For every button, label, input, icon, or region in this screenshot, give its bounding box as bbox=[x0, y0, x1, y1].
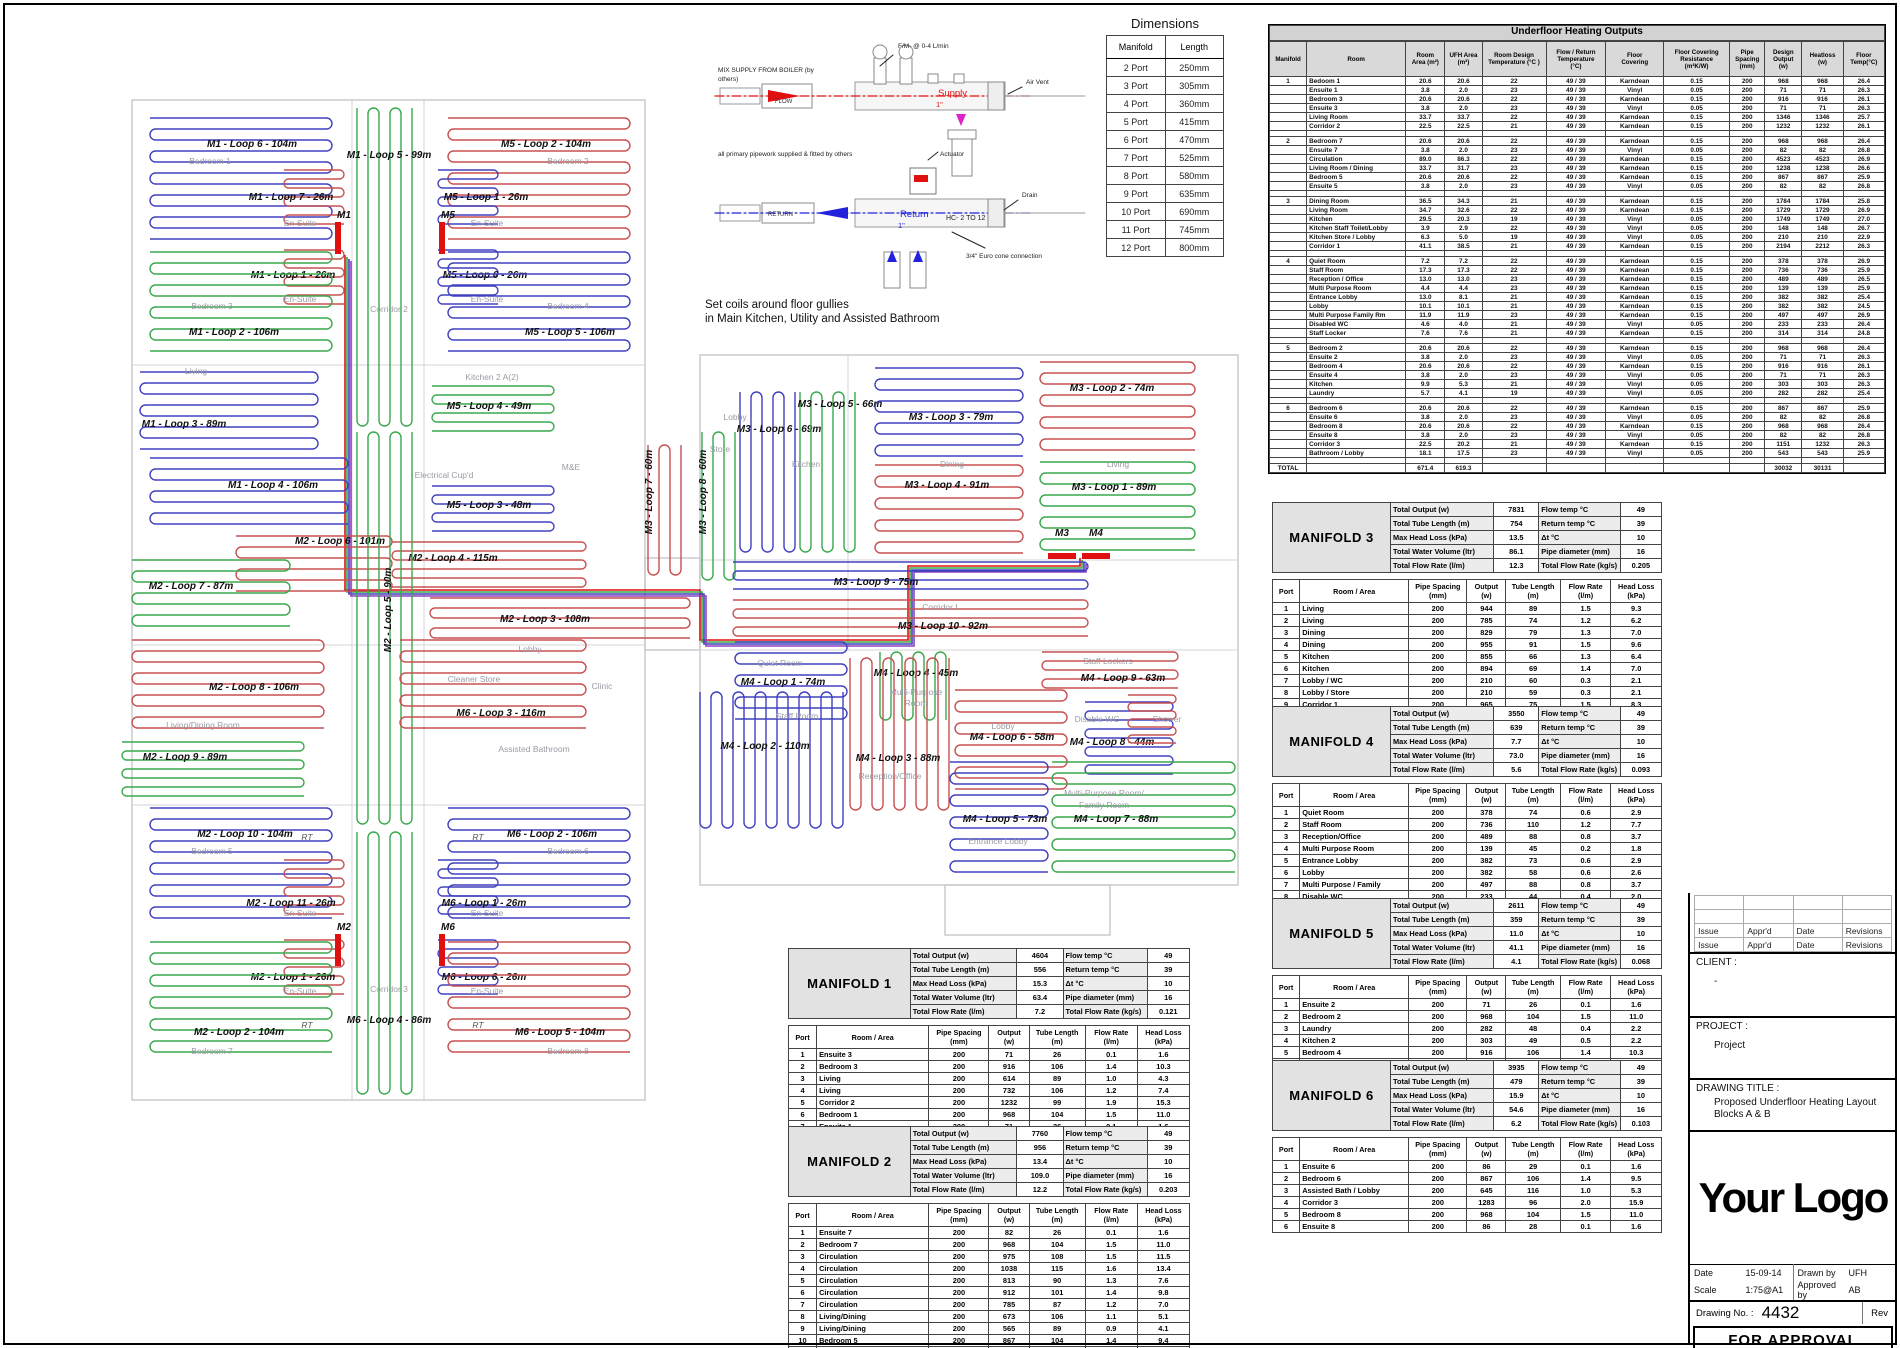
date-scale-table: Date 15-09-14 Drawn by UFH Scale 1:75@A1… bbox=[1690, 1264, 1896, 1300]
room-label: Kitchen 2 A(2) bbox=[465, 372, 519, 382]
loop-label: M2 - Loop 10 - 104m bbox=[197, 829, 293, 840]
room-label: Assisted Bathroom bbox=[498, 744, 569, 754]
table-row: 10 Port690mm bbox=[1107, 203, 1224, 221]
port-row: 1Ensuite 720082260.11.6 bbox=[789, 1227, 1190, 1239]
room-thermostat-label: RT bbox=[301, 1020, 313, 1030]
heating-loop bbox=[875, 465, 1023, 553]
port-row: 8Lobby / Store200210590.32.1 bbox=[1273, 687, 1662, 699]
table-row: 3 Port305mm bbox=[1107, 77, 1224, 95]
manifold-summary-block: MANIFOLD 6Total Output (w)3935Flow temp … bbox=[1272, 1060, 1662, 1233]
heating-outputs-panel: Underfloor Heating Outputs ManifoldRoomR… bbox=[1268, 24, 1886, 474]
port-row: 1Ensuite 320071260.11.6 bbox=[789, 1049, 1190, 1061]
table-row: 2 Port250mm bbox=[1107, 59, 1224, 77]
heating-loop bbox=[132, 560, 290, 626]
port-row: 4Kitchen 2200303490.52.2 bbox=[1273, 1035, 1662, 1047]
port-row: 4Dining200955911.59.6 bbox=[1273, 639, 1662, 651]
loop-label: M3 - Loop 1 - 89m bbox=[1072, 482, 1157, 493]
room-label: Multi-Purpose Room/ bbox=[1064, 788, 1144, 798]
port-row: 3Assisted Bath / Lobby2006451161.05.3 bbox=[1273, 1185, 1662, 1197]
column-header: Room Area (m²) bbox=[1406, 42, 1445, 77]
room-label: Cleaner Store bbox=[448, 674, 501, 684]
port-row: 5Entrance Lobby200382730.62.9 bbox=[1273, 855, 1662, 867]
loop-label: M4 - Loop 2 - 110m bbox=[720, 741, 809, 752]
filter-arrow bbox=[956, 114, 966, 126]
table-row: Disabled WC4.64.02149 / 39Vinyl0.0520023… bbox=[1270, 320, 1885, 329]
loop-label: M6 - Loop 5 - 104m bbox=[515, 1027, 605, 1038]
schematic-label-mix1: MIX SUPPLY FROM BOILER (by bbox=[718, 67, 815, 74]
room-label: Corridor 2 bbox=[370, 304, 408, 314]
heating-outputs-table: Underfloor Heating Outputs ManifoldRoomR… bbox=[1269, 25, 1885, 473]
room-label: Lobby bbox=[991, 721, 1015, 731]
schematic-label-supply-size: 1" bbox=[936, 100, 943, 109]
port-row: 1Ensuite 620086290.11.6 bbox=[1273, 1161, 1662, 1173]
schematic-label-supply: Supply bbox=[938, 88, 967, 99]
loop-label: M5 - Loop 3 - 48m bbox=[447, 500, 532, 511]
table-row: Bathroom / Lobby18.117.52349 / 39Vinyl0.… bbox=[1270, 449, 1885, 458]
heating-loop bbox=[740, 392, 795, 552]
port-row: 2Living200785741.26.2 bbox=[1273, 615, 1662, 627]
loop-label: M4 - Loop 7 - 88m bbox=[1074, 814, 1159, 825]
table-row: Ensuite 83.82.02349 / 39Vinyl0.052008282… bbox=[1270, 431, 1885, 440]
loop-label: M2 - Loop 1 - 26m bbox=[251, 972, 336, 983]
manifold-summary-block: MANIFOLD 4Total Output (w)3550Flow temp … bbox=[1272, 706, 1662, 915]
manifold-marker bbox=[1048, 553, 1076, 559]
loop-label: M2 - Loop 8 - 106m bbox=[209, 682, 299, 693]
table-row: Ensuite 43.82.02349 / 39Vinyl0.052007171… bbox=[1270, 371, 1885, 380]
loop-label: M5 - Loop 6 - 26m bbox=[443, 270, 528, 281]
dimensions-title: Dimensions bbox=[1106, 16, 1224, 31]
date-value: 15-09-14 bbox=[1742, 1265, 1794, 1281]
table-row: Ensuite 53.82.02349 / 39Vinyl0.052008282… bbox=[1270, 182, 1885, 191]
approved-by-label: Approved by bbox=[1793, 1280, 1845, 1300]
drawn-by-label: Drawn by bbox=[1793, 1265, 1845, 1281]
room-label: Quiet Room bbox=[757, 658, 802, 668]
loop-label: M2 - Loop 9 - 89m bbox=[143, 752, 228, 763]
drawing-title-line1: Proposed Underfloor Heating Layout bbox=[1714, 1097, 1890, 1108]
port-row: 5Circulation200813901.37.6 bbox=[789, 1275, 1190, 1287]
manifold-name: MANIFOLD 6 bbox=[1273, 1061, 1391, 1131]
drawing-title-box: DRAWING TITLE : Proposed Underfloor Heat… bbox=[1690, 1078, 1896, 1130]
scale-value: 1:75@A1 bbox=[1742, 1280, 1794, 1300]
port-row: 4Multi Purpose Room200139450.21.8 bbox=[1273, 843, 1662, 855]
heating-loop bbox=[800, 392, 855, 552]
loop-label: M2 - Loop 6 - 101m bbox=[295, 536, 385, 547]
loop-label: M3 - Loop 4 - 91m bbox=[905, 480, 990, 491]
loop-label: M4 - Loop 5 - 73m bbox=[963, 814, 1048, 825]
approved-by-value: AB bbox=[1845, 1280, 1897, 1300]
building-outline bbox=[945, 885, 1110, 935]
schematic-label-air-vent: Air Vent bbox=[1026, 79, 1049, 86]
table-row: 9 Port635mm bbox=[1107, 185, 1224, 203]
schematic-label-return-box: RETURN bbox=[768, 212, 793, 218]
room-label: En-Suite bbox=[284, 986, 317, 996]
room-label: Bedroom 4 bbox=[547, 301, 589, 311]
table-row: Bedroom 820.620.62249 / 39Karndean0.1520… bbox=[1270, 422, 1885, 431]
heating-loop bbox=[357, 832, 412, 1094]
room-label: En-Suite bbox=[471, 986, 504, 996]
logo-box: Your Logo bbox=[1690, 1130, 1896, 1264]
table-row: Ensuite 13.82.02349 / 39Vinyl0.052007171… bbox=[1270, 86, 1885, 95]
table-row: 4Quiet Room7.27.22249 / 39Karndean0.1520… bbox=[1270, 257, 1885, 266]
column-header: Pipe Spacing (mm) bbox=[1730, 42, 1765, 77]
project-box: PROJECT : Project bbox=[1690, 1016, 1896, 1078]
port-row: 3Reception/Office200489880.83.7 bbox=[1273, 831, 1662, 843]
table-row: 2Bedroom 720.620.62249 / 39Karndean0.152… bbox=[1270, 137, 1885, 146]
project-label: PROJECT : bbox=[1696, 1021, 1890, 1032]
room-label: Family Room bbox=[1079, 800, 1129, 810]
room-label: Bedroom 6 bbox=[547, 846, 589, 856]
room-label: Kitchen bbox=[792, 459, 821, 469]
table-row: 3Dining Room36.534.32149 / 39Karndean0.1… bbox=[1270, 197, 1885, 206]
table-row: Lobby10.110.12149 / 39Karndean0.15200382… bbox=[1270, 302, 1885, 311]
manifold-marker-label: M6 bbox=[441, 922, 455, 933]
loop-label: M4 - Loop 3 - 88m bbox=[856, 753, 941, 764]
heating-loop bbox=[880, 652, 946, 720]
table-row: Multi Purpose Room4.44.42349 / 39Karndea… bbox=[1270, 284, 1885, 293]
manifold-marker bbox=[335, 934, 341, 966]
heating-loop bbox=[150, 458, 348, 524]
port-row: 2Bedroom 72009681041.511.0 bbox=[789, 1239, 1190, 1251]
table-row: 11 Port745mm bbox=[1107, 221, 1224, 239]
room-label: Multi-Purpose bbox=[890, 687, 943, 697]
room-label: Staff Lockers bbox=[1083, 656, 1132, 666]
room-label: Corridor 3 bbox=[370, 984, 408, 994]
loop-label: M3 - Loop 9 - 75m bbox=[834, 577, 919, 588]
table-row: Bedroom 320.620.62249 / 39Karndean0.1520… bbox=[1270, 95, 1885, 104]
loop-label: M1 - Loop 5 - 99m bbox=[347, 150, 432, 161]
table-row: 5Bedroom 220.620.62249 / 39Karndean0.152… bbox=[1270, 344, 1885, 353]
table-row: 5 Port415mm bbox=[1107, 113, 1224, 131]
table-row: Bedroom 420.620.62249 / 39Karndean0.1520… bbox=[1270, 362, 1885, 371]
manifold-name: MANIFOLD 3 bbox=[1273, 503, 1391, 573]
manifold-marker bbox=[439, 222, 445, 254]
drawing-no-label: Drawing No. : bbox=[1690, 1308, 1754, 1319]
schematic-label-drain: Drain bbox=[1022, 192, 1038, 199]
room-label: Bedroom 8 bbox=[547, 1046, 589, 1056]
room-label: En-Suite bbox=[284, 218, 317, 228]
table-row: 7 Port525mm bbox=[1107, 149, 1224, 167]
loop-label: M3 - Loop 3 - 79m bbox=[909, 412, 994, 423]
room-thermostat-label: RT bbox=[301, 832, 313, 842]
table-row: 8 Port580mm bbox=[1107, 167, 1224, 185]
port-row: 4Living2007321061.27.4 bbox=[789, 1085, 1190, 1097]
port-row: 6Kitchen200894691.47.0 bbox=[1273, 663, 1662, 675]
heating-loop bbox=[392, 542, 586, 587]
port-row: 7Circulation200785871.27.0 bbox=[789, 1299, 1190, 1311]
schematic-label-fm: F/M- @ 0-4 L/min bbox=[898, 43, 949, 50]
column-header: Manifold bbox=[1270, 42, 1307, 77]
column-header: Flow / Return Temperature (°C) bbox=[1546, 42, 1606, 77]
port-row: 8Living/Dining2006731061.15.1 bbox=[789, 1311, 1190, 1323]
manifold-name: MANIFOLD 1 bbox=[789, 949, 911, 1019]
port-row: 7Lobby / WC200210600.32.1 bbox=[1273, 675, 1662, 687]
table-row: Kitchen Staff Toilet/Lobby3.92.92249 / 3… bbox=[1270, 224, 1885, 233]
schematic-label-euro: 3/4" Euro cone connection bbox=[966, 253, 1042, 260]
revisions-table: IssueAppr'dDateRevisionsIssueAppr'dDateR… bbox=[1694, 895, 1892, 952]
schematic-label-return-size: 1" bbox=[898, 221, 905, 230]
port-row: 2Staff Room2007361101.27.7 bbox=[1273, 819, 1662, 831]
port-row: 2Bedroom 32009161061.410.3 bbox=[789, 1061, 1190, 1073]
table-row: Staff Room17.317.32249 / 39Karndean0.152… bbox=[1270, 266, 1885, 275]
table-row: TOTAL671.4619.33003230131 bbox=[1270, 464, 1885, 473]
manifold-marker-label: M3 bbox=[1055, 528, 1069, 539]
table-row: Kitchen Store / Lobby6.35.01949 / 39Viny… bbox=[1270, 233, 1885, 242]
table-row: Reception / Office13.013.02349 / 39Karnd… bbox=[1270, 275, 1885, 284]
loop-label: M1 - Loop 1 - 26m bbox=[251, 270, 336, 281]
loop-label: M5 - Loop 2 - 104m bbox=[501, 139, 591, 150]
port-row: 3Living200614891.04.3 bbox=[789, 1073, 1190, 1085]
room-label: Entrance Lobby bbox=[968, 836, 1028, 846]
loop-label: M3 - Loop 8 - 60m bbox=[698, 450, 709, 535]
loop-label: M3 - Loop 7 - 60m bbox=[644, 450, 655, 535]
loop-label: M3 - Loop 5 - 66m bbox=[798, 399, 883, 410]
port-row: 10Bedroom 52008671041.49.4 bbox=[789, 1335, 1190, 1347]
table-row: Bedroom 520.620.62249 / 39Karndean0.1520… bbox=[1270, 173, 1885, 182]
schematic-label-hc: HC- 2 TO 12 bbox=[946, 215, 986, 222]
client-label: CLIENT : bbox=[1696, 957, 1890, 968]
heating-loop bbox=[1040, 362, 1195, 450]
loop-label: M2 - Loop 3 - 108m bbox=[500, 614, 590, 625]
company-logo: Your Logo bbox=[1699, 1174, 1888, 1222]
loop-label: M6 - Loop 3 - 116m bbox=[456, 708, 545, 719]
port-row: 6Ensuite 820086280.11.6 bbox=[1273, 1221, 1662, 1233]
room-label: En-Suite bbox=[284, 294, 317, 304]
port-row: 1Living200944891.59.3 bbox=[1273, 603, 1662, 615]
manifold-summary-block: MANIFOLD 3Total Output (w)7831Flow temp … bbox=[1272, 502, 1662, 723]
scale-label: Scale bbox=[1690, 1280, 1742, 1300]
column-header: Design Output (w) bbox=[1765, 42, 1802, 77]
heating-loop bbox=[122, 742, 304, 796]
manifold-marker bbox=[439, 934, 445, 966]
table-row: Staff Locker7.67.62149 / 39Karndean0.152… bbox=[1270, 329, 1885, 338]
table-row: Ensuite 33.82.02349 / 39Vinyl0.052007171… bbox=[1270, 104, 1885, 113]
column-header: Manifold bbox=[1107, 36, 1166, 59]
table-row: Ensuite 73.82.02349 / 39Vinyl0.052008282… bbox=[1270, 146, 1885, 155]
port-row: 4Corridor 32001283962.015.9 bbox=[1273, 1197, 1662, 1209]
loop-label: M2 - Loop 2 - 104m bbox=[194, 1027, 284, 1038]
column-header: Floor Covering bbox=[1606, 42, 1664, 77]
loop-label: M2 - Loop 4 - 115m bbox=[408, 553, 497, 564]
port-row: 2Bedroom 22009681041.511.0 bbox=[1273, 1011, 1662, 1023]
manifold-name: MANIFOLD 4 bbox=[1273, 707, 1391, 777]
port-row: 6Bedroom 12009681041.511.0 bbox=[789, 1109, 1190, 1121]
loop-label: M1 - Loop 6 - 104m bbox=[207, 139, 297, 150]
manifold-marker-label: M1 bbox=[337, 210, 351, 221]
loop-label: M6 - Loop 6 - 26m bbox=[442, 972, 527, 983]
loop-label: M5 - Loop 5 - 106m bbox=[525, 327, 615, 338]
heating-loop bbox=[700, 692, 843, 828]
port-row: 4Circulation20010381151.613.4 bbox=[789, 1263, 1190, 1275]
room-label: En-Suite bbox=[471, 218, 504, 228]
table-row: Living Room33.733.72249 / 39Karndean0.15… bbox=[1270, 113, 1885, 122]
room-label: En-Suite bbox=[284, 908, 317, 918]
manifold-summary-block: MANIFOLD 5Total Output (w)2611Flow temp … bbox=[1272, 898, 1662, 1071]
note-line-1: Set coils around floor gullies bbox=[705, 299, 849, 311]
port-row: 5Bedroom 42009161061.410.3 bbox=[1273, 1047, 1662, 1059]
room-label: M&E bbox=[562, 462, 581, 472]
loop-label: M4 - Loop 1 - 74m bbox=[741, 677, 826, 688]
port-row: 9Living/Dining200565890.94.1 bbox=[789, 1323, 1190, 1335]
port-row: 1Quiet Room200378740.62.9 bbox=[1273, 807, 1662, 819]
port-row: 3Laundry200282480.42.2 bbox=[1273, 1023, 1662, 1035]
client-box: CLIENT : - bbox=[1690, 952, 1896, 1016]
drawing-sheet: M1 - Loop 6 - 104mM1 - Loop 5 - 99mM5 - … bbox=[0, 0, 1900, 1348]
drawing-title-label: DRAWING TITLE : bbox=[1696, 1083, 1890, 1094]
room-label: Disable WC bbox=[1075, 714, 1120, 724]
room-label: Bedroom 3 bbox=[191, 301, 233, 311]
room-label: Living/Dining Room bbox=[166, 720, 240, 730]
loop-label: M1 - Loop 3 - 89m bbox=[142, 419, 227, 430]
heating-loop bbox=[140, 372, 318, 449]
room-label: Bedroom 2 bbox=[547, 156, 589, 166]
rev-label: Rev bbox=[1862, 1302, 1896, 1324]
dimensions-panel: Dimensions ManifoldLength2 Port250mm3 Po… bbox=[1106, 16, 1224, 257]
room-label: Clinic bbox=[592, 681, 614, 691]
table-row: Multi Purpose Family Rm11.911.92349 / 39… bbox=[1270, 311, 1885, 320]
room-label: Shower bbox=[1153, 714, 1182, 724]
date-label: Date bbox=[1690, 1265, 1742, 1281]
loop-label: M5 - Loop 4 - 49m bbox=[447, 401, 532, 412]
dimensions-table: ManifoldLength2 Port250mm3 Port305mm4 Po… bbox=[1106, 35, 1224, 257]
drawing-number-row: Drawing No. : 4432 Rev bbox=[1690, 1300, 1896, 1324]
table-row: Ensuite 63.82.02349 / 39Vinyl0.052008282… bbox=[1270, 413, 1885, 422]
manifold-schematic-diagram: F/M- @ 0-4 L/min MIX SUPPLY FROM BOILER … bbox=[705, 43, 1085, 325]
loop-label: M3 - Loop 2 - 74m bbox=[1070, 383, 1155, 394]
room-label: Lobby bbox=[518, 644, 542, 654]
drawing-no-value: 4432 bbox=[1754, 1303, 1863, 1323]
room-label: Electrical Cup'd bbox=[415, 470, 474, 480]
table-row: Laundry5.74.11949 / 39Vinyl0.05200282282… bbox=[1270, 389, 1885, 398]
room-label: Lobby bbox=[723, 412, 747, 422]
title-block: IssueAppr'dDateRevisionsIssueAppr'dDateR… bbox=[1688, 893, 1896, 1343]
manifold-marker-label: M5 bbox=[441, 210, 455, 221]
port-row: 6Circulation2009121011.49.8 bbox=[789, 1287, 1190, 1299]
table-row: 4 Port360mm bbox=[1107, 95, 1224, 113]
schematic-label-flow: FLOW bbox=[775, 99, 793, 105]
table-row: Living Room / Dining33.731.72349 / 39Kar… bbox=[1270, 164, 1885, 173]
manifold-summary-block: MANIFOLD 2Total Output (w)7760Flow temp … bbox=[788, 1126, 1190, 1348]
building-outline bbox=[645, 558, 700, 650]
flow-meter-icon bbox=[873, 45, 887, 59]
port-row: 1Ensuite 220071260.11.6 bbox=[1273, 999, 1662, 1011]
loop-label: M2 - Loop 7 - 87m bbox=[149, 581, 234, 592]
table-row: Corridor 141.138.52149 / 39Karndean0.152… bbox=[1270, 242, 1885, 251]
room-label: En-Suite bbox=[471, 294, 504, 304]
room-label: Living bbox=[1107, 459, 1129, 469]
port-row: 7Multi Purpose / Family200497880.83.7 bbox=[1273, 879, 1662, 891]
schematic-label-primary: all primary pipework supplied & fitted b… bbox=[718, 151, 853, 158]
room-label: Staff Room bbox=[776, 711, 818, 721]
heating-loop bbox=[850, 658, 949, 810]
port-row: 3Circulation2009751081.511.5 bbox=[789, 1251, 1190, 1263]
table-row: Kitchen9.95.32149 / 39Vinyl0.05200303303… bbox=[1270, 380, 1885, 389]
manifold-name: MANIFOLD 5 bbox=[1273, 899, 1391, 969]
column-header: Room Design Temperature (°C ) bbox=[1482, 42, 1546, 77]
column-header: Heatloss (w) bbox=[1802, 42, 1843, 77]
table-row: 6 Port470mm bbox=[1107, 131, 1224, 149]
port-row: 5Kitchen200855661.36.4 bbox=[1273, 651, 1662, 663]
loop-label: M1 - Loop 4 - 106m bbox=[228, 480, 318, 491]
loop-label: M4 - Loop 9 - 63m bbox=[1081, 673, 1166, 684]
room-label: Bedroom 7 bbox=[191, 1046, 233, 1056]
room-label: Room bbox=[905, 698, 928, 708]
room-thermostat-label: RT bbox=[472, 832, 484, 842]
drawn-by-value: UFH bbox=[1845, 1265, 1897, 1281]
table-row: 1Bedoom 120.620.62249 / 39Karndean0.1520… bbox=[1270, 77, 1885, 86]
table-row: 12 Port800mm bbox=[1107, 239, 1224, 257]
schematic-label-return: Return bbox=[900, 209, 929, 220]
room-label: Store bbox=[710, 444, 731, 454]
room-thermostat-label: RT bbox=[472, 1020, 484, 1030]
drawing-title-line2: Blocks A & B bbox=[1714, 1109, 1890, 1120]
room-label: En-Suite bbox=[471, 908, 504, 918]
loop-label: M1 - Loop 7 - 26m bbox=[249, 192, 334, 203]
manifold-marker bbox=[1082, 553, 1110, 559]
loop-label: M3 - Loop 6 - 69m bbox=[737, 424, 822, 435]
column-header: Length bbox=[1165, 36, 1224, 59]
loop-label: M4 - Loop 6 - 58m bbox=[970, 732, 1055, 743]
port-row: 5Bedroom 82009681041.511.0 bbox=[1273, 1209, 1662, 1221]
manifold-marker-label: M2 bbox=[337, 922, 351, 933]
client-value: - bbox=[1714, 976, 1890, 987]
loop-label: M2 - Loop 5 - 90m bbox=[383, 568, 394, 653]
table-row: Corridor 222.522.52149 / 39Karndean0.152… bbox=[1270, 122, 1885, 131]
table-row: Living Room34.732.62249 / 39Karndean0.15… bbox=[1270, 206, 1885, 215]
schematic-label-mix2: others) bbox=[718, 76, 738, 83]
table-row: Entrance Lobby13.08.12149 / 39Karndean0.… bbox=[1270, 293, 1885, 302]
room-label: Living bbox=[185, 366, 207, 376]
port-row: 3Dining200829791.37.0 bbox=[1273, 627, 1662, 639]
room-label: Dining bbox=[940, 459, 964, 469]
port-row: 5Corridor 22001232991.915.3 bbox=[789, 1097, 1190, 1109]
manifold-name: MANIFOLD 2 bbox=[789, 1127, 911, 1197]
table-row: Ensuite 23.82.02349 / 39Vinyl0.052007171… bbox=[1270, 353, 1885, 362]
project-value: Project bbox=[1714, 1040, 1890, 1051]
loop-label: M6 - Loop 4 - 86m bbox=[347, 1015, 432, 1026]
table-row: Circulation89.086.32249 / 39Karndean0.15… bbox=[1270, 155, 1885, 164]
loop-label: M3 - Loop 10 - 92m bbox=[898, 621, 988, 632]
note-line-2: in Main Kitchen, Utility and Assisted Ba… bbox=[705, 313, 940, 325]
table-row: Corridor 322.520.22149 / 39Karndean0.152… bbox=[1270, 440, 1885, 449]
column-header: Room bbox=[1307, 42, 1406, 77]
column-header: Floor Covering Resistance (m²K/W) bbox=[1664, 42, 1730, 77]
loop-label: M6 - Loop 2 - 106m bbox=[507, 829, 597, 840]
heating-outputs-title: Underfloor Heating Outputs bbox=[1269, 25, 1885, 41]
room-label: Bedroom 1 bbox=[189, 156, 231, 166]
manifold-summary-block: MANIFOLD 1Total Output (w)4604Flow temp … bbox=[788, 948, 1190, 1133]
column-header: Floor Temp(°C) bbox=[1843, 42, 1884, 77]
schematic-label-actuator: Actuator bbox=[940, 151, 965, 158]
loop-label: M1 - Loop 2 - 106m bbox=[189, 327, 279, 338]
port-row: 6Lobby200382580.62.6 bbox=[1273, 867, 1662, 879]
column-header: UFH Area (m²) bbox=[1445, 42, 1482, 77]
manifold-marker-label: M4 bbox=[1089, 528, 1103, 539]
table-row: Kitchen29.520.31949 / 39Vinyl0.052001749… bbox=[1270, 215, 1885, 224]
port-row: 2Bedroom 62008671061.49.5 bbox=[1273, 1173, 1662, 1185]
room-label: Reception/Office bbox=[859, 771, 922, 781]
room-label: Bedroom 5 bbox=[191, 846, 233, 856]
approval-stamp: FOR APPROVAL bbox=[1693, 1326, 1893, 1348]
room-label: Corridor I bbox=[922, 602, 957, 612]
loop-label: M5 - Loop 1 - 26m bbox=[444, 192, 529, 203]
manifold-marker bbox=[335, 222, 341, 254]
table-row: 6Bedroom 620.620.62249 / 39Karndean0.152… bbox=[1270, 404, 1885, 413]
